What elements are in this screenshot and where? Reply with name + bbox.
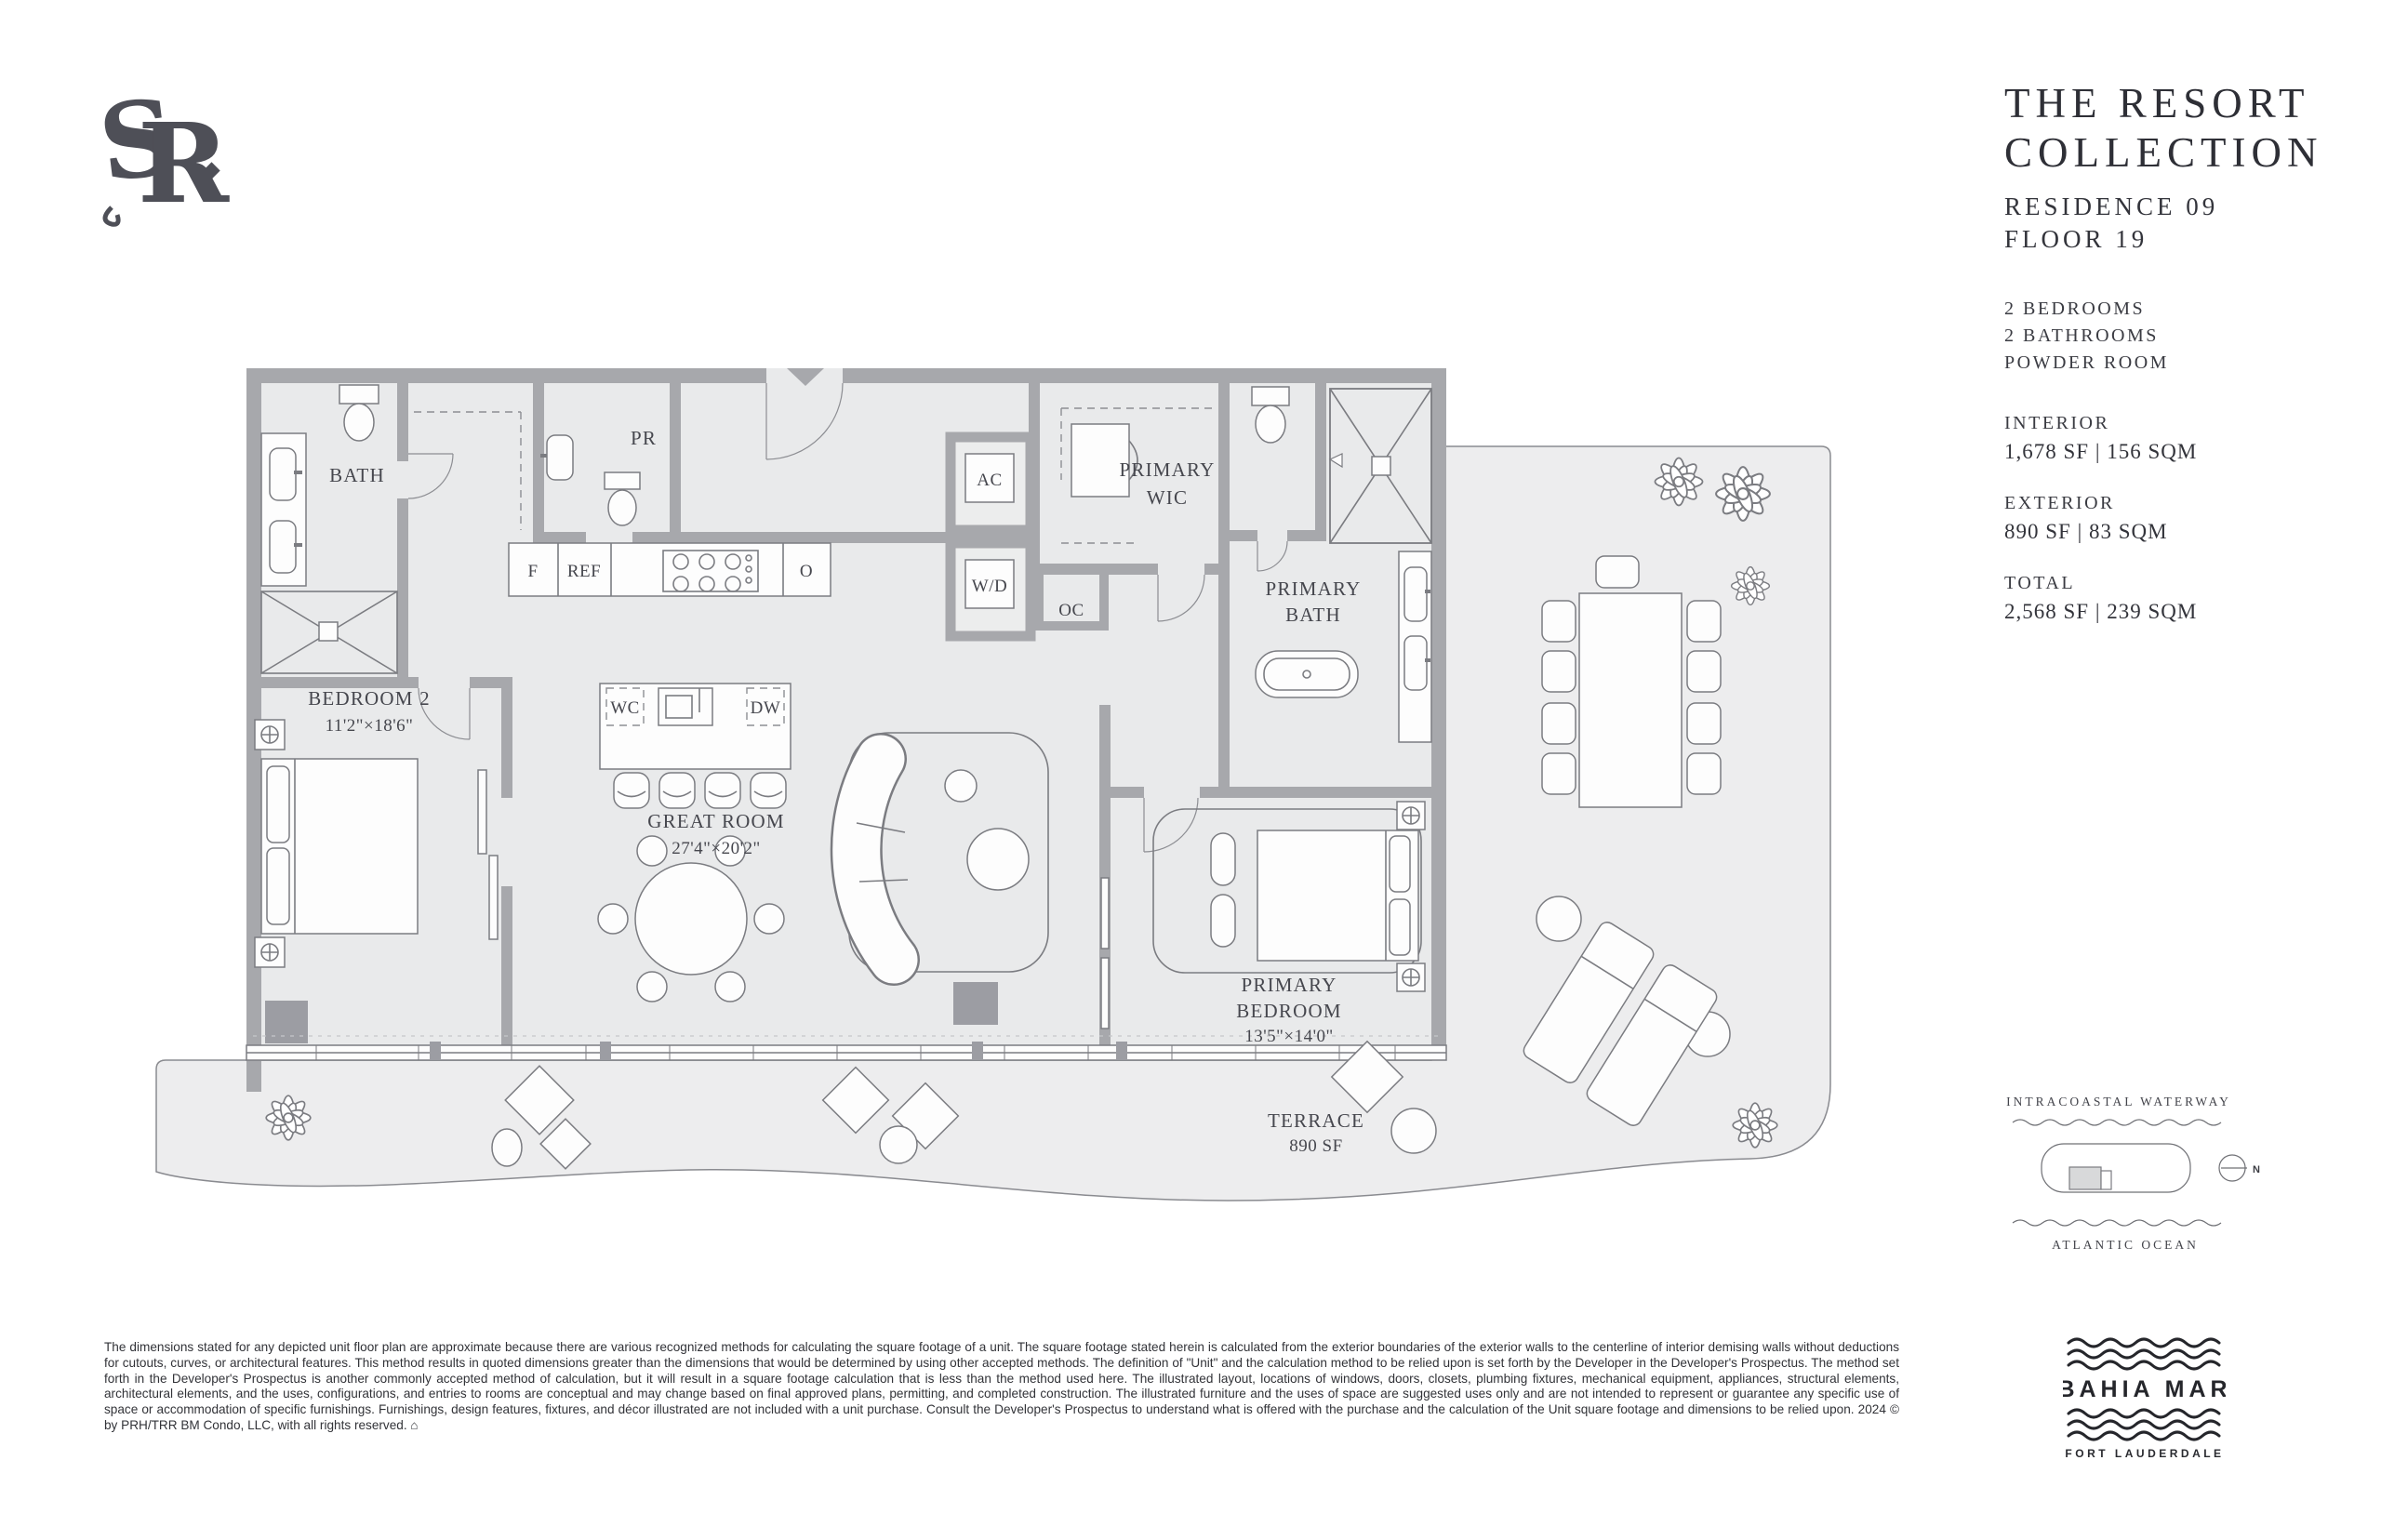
toilet (339, 385, 379, 404)
legal-disclaimer: The dimensions stated for any depicted u… (104, 1340, 1899, 1434)
toilet (605, 472, 640, 489)
collection-title-line2: COLLECTION (2004, 128, 2322, 178)
monogram-letter-r: R (138, 99, 230, 228)
brand-city: FORT LAUDERDALE (2065, 1447, 2224, 1460)
label-primary-bath-1: PRIMARY (1266, 577, 1362, 600)
label-oven: O (800, 562, 813, 581)
side-table (1536, 896, 1581, 941)
feature-bathrooms: 2 BATHROOMS (2004, 323, 2169, 350)
label-great-room-dims: 27'4"×20'2" (672, 839, 761, 858)
logo-waves-bottom (2068, 1410, 2219, 1440)
area-summary: INTERIOR 1,678 SF | 156 SQM EXTERIOR 890… (2004, 409, 2197, 649)
feature-bedrooms: 2 BEDROOMS (2004, 296, 2169, 323)
brand-name: BAHIA MAR (2063, 1376, 2226, 1402)
area-total-value: 2,568 SF | 239 SQM (2004, 597, 2197, 627)
label-primary-bedroom-2: BEDROOM (1236, 1000, 1341, 1022)
feature-powder-room: POWDER ROOM (2004, 350, 2169, 377)
area-total: TOTAL 2,568 SF | 239 SQM (2004, 569, 2197, 627)
area-interior-label: INTERIOR (2004, 409, 2197, 437)
building-footprint (2069, 1167, 2101, 1189)
label-primary-bedroom-1: PRIMARY (1242, 974, 1337, 996)
bench (1211, 833, 1235, 885)
label-oc: OC (1058, 601, 1084, 620)
label-wd: W/D (972, 577, 1007, 596)
label-terrace-sf: 890 SF (1289, 1136, 1342, 1156)
label-ac: AC (977, 471, 1002, 490)
bench (1211, 895, 1235, 947)
label-wic-1: PRIMARY (1120, 458, 1216, 481)
label-pr: PR (631, 427, 657, 449)
label-wic-2: WIC (1147, 486, 1188, 509)
collection-title: THE RESORT COLLECTION (2004, 79, 2322, 178)
area-exterior-label: EXTERIOR (2004, 489, 2197, 517)
collection-title-line1: THE RESORT (2004, 79, 2322, 128)
water-wave-line (2013, 1120, 2221, 1125)
closet-door (489, 856, 498, 939)
monogram-flourish (105, 207, 118, 224)
column (265, 1001, 308, 1043)
residence-number: RESIDENCE 09 (2004, 191, 2218, 223)
waterway-label: INTRACOASTAL WATERWAY (2006, 1095, 2231, 1109)
label-refrigerator: REF (567, 562, 601, 581)
compass-north-label: N (2253, 1164, 2260, 1175)
label-primary-bath-2: BATH (1285, 604, 1341, 626)
side-table (880, 1126, 917, 1163)
area-interior-value: 1,678 SF | 156 SQM (2004, 437, 2197, 467)
water-wave-line (2013, 1220, 2221, 1226)
feature-list: 2 BEDROOMS 2 BATHROOMS POWDER ROOM (2004, 296, 2169, 377)
area-interior: INTERIOR 1,678 SF | 156 SQM (2004, 409, 2197, 467)
compass-icon: N (2219, 1155, 2260, 1181)
label-bedroom2: BEDROOM 2 (308, 687, 431, 710)
kitchen-counter (509, 543, 831, 596)
site-locator: INTRACOASTAL WATERWAY N ATLANTIC OCEAN (2000, 1093, 2279, 1269)
label-dishwasher: DW (751, 698, 781, 718)
side-table (492, 1129, 522, 1166)
bahia-mar-logo: BAHIA MAR FORT LAUDERDALE (2063, 1334, 2226, 1464)
area-exterior: EXTERIOR 890 SF | 83 SQM (2004, 489, 2197, 547)
label-freezer: F (527, 562, 538, 581)
floor-plan: BATH PR AC W/D OC PRIMARY WIC PRIMARY BA… (149, 361, 1837, 1212)
closet-door (478, 770, 486, 854)
label-wine-cooler: WC (610, 698, 640, 718)
residence-block: RESIDENCE 09 FLOOR 19 (2004, 191, 2218, 256)
toilet (1252, 387, 1289, 405)
coffee-table (967, 829, 1029, 890)
outdoor-chair (1596, 556, 1639, 588)
area-exterior-value: 890 SF | 83 SQM (2004, 517, 2197, 547)
logo-waves-top (2068, 1339, 2219, 1369)
label-primary-bedroom-dims: 13'5"×14'0" (1244, 1027, 1334, 1046)
area-total-label: TOTAL (2004, 569, 2197, 597)
label-terrace: TERRACE (1268, 1109, 1364, 1132)
column (953, 982, 998, 1025)
label-bath: BATH (329, 464, 385, 486)
side-table (1391, 1109, 1436, 1153)
outdoor-dining-table (1579, 593, 1682, 807)
side-table (945, 770, 977, 802)
site-island (2042, 1144, 2190, 1192)
floor-number: FLOOR 19 (2004, 223, 2218, 256)
label-bedroom2-dims: 11'2"×18'6" (326, 716, 414, 736)
building-footprint-wing (2101, 1171, 2111, 1189)
resort-monogram-logo-icon: S R (93, 79, 237, 228)
label-great-room: GREAT ROOM (647, 810, 785, 832)
ocean-label: ATLANTIC OCEAN (2052, 1238, 2199, 1252)
